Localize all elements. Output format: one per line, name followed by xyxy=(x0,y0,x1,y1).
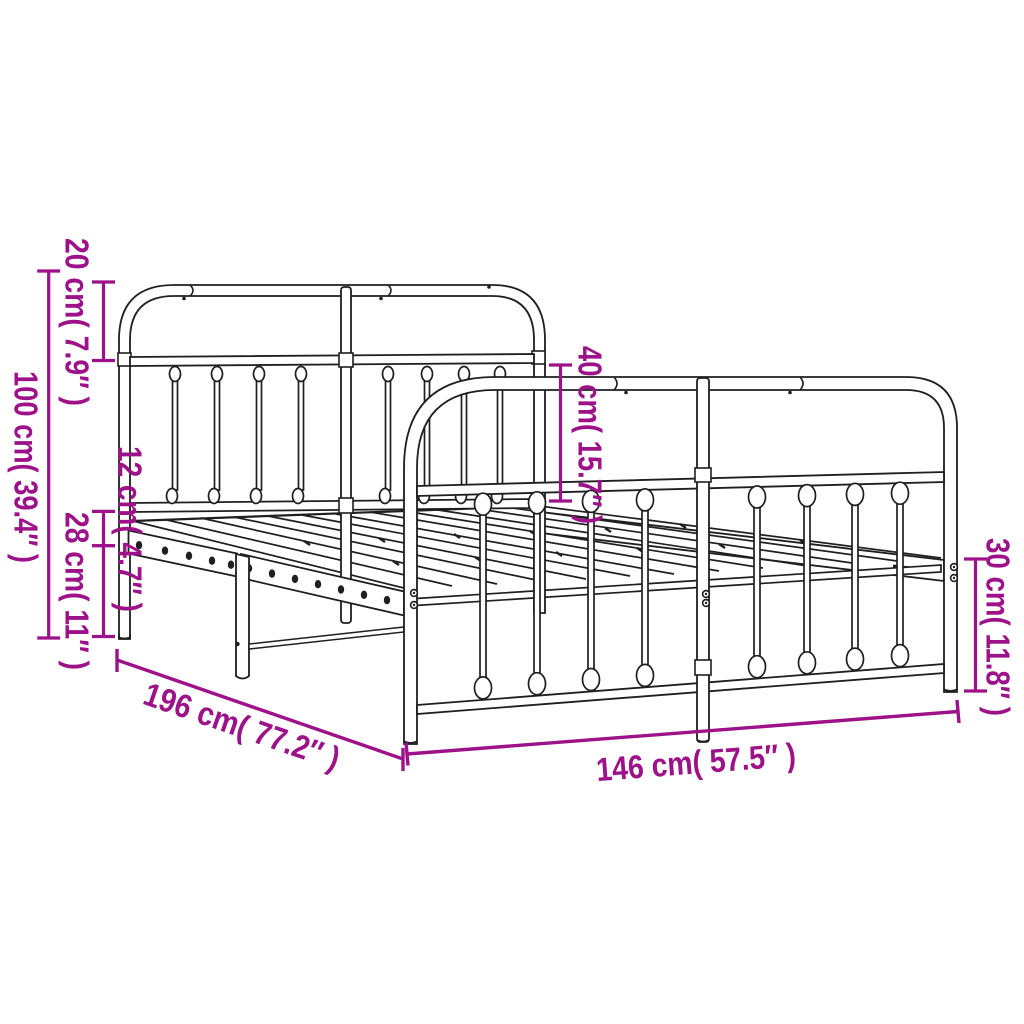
svg-text:28 cm( 11″ ): 28 cm( 11″ ) xyxy=(59,512,96,670)
svg-text:20 cm( 7.9″ ): 20 cm( 7.9″ ) xyxy=(59,238,96,406)
svg-text:100 cm( 39.4″ ): 100 cm( 39.4″ ) xyxy=(8,371,45,563)
svg-text:40 cm( 15.7″ ): 40 cm( 15.7″ ) xyxy=(572,346,609,524)
svg-text:12 cm( 4.7″ ): 12 cm( 4.7″ ) xyxy=(112,446,149,612)
svg-text:30 cm( 11.8″ ): 30 cm( 11.8″ ) xyxy=(980,538,1017,716)
